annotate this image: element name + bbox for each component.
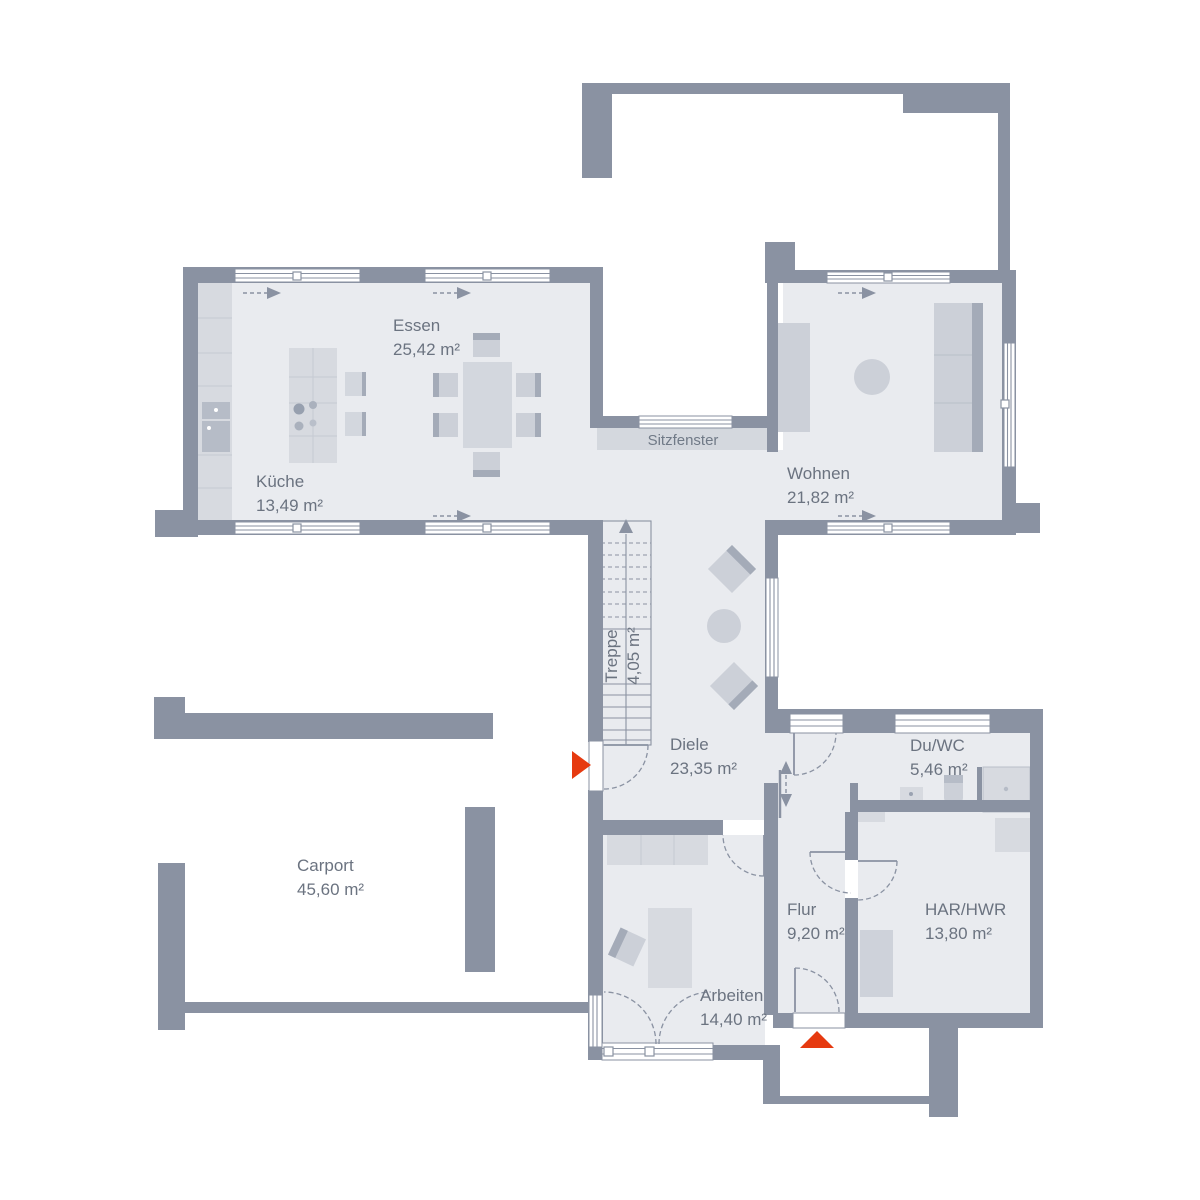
svg-text:13,49 m²: 13,49 m² <box>256 496 323 515</box>
svg-text:21,82 m²: 21,82 m² <box>787 488 854 507</box>
window <box>827 272 950 283</box>
toilet <box>944 775 963 803</box>
kitchen-counter <box>198 283 232 520</box>
office-desk <box>648 908 692 988</box>
office-shelf <box>607 835 708 865</box>
svg-text:Arbeiten: Arbeiten <box>700 986 763 1005</box>
washing-machine <box>995 818 1030 852</box>
utility-cabinet <box>860 930 893 997</box>
svg-text:Carport: Carport <box>297 856 354 875</box>
svg-text:4,05 m²: 4,05 m² <box>624 627 643 685</box>
sofa <box>934 303 972 452</box>
svg-text:25,42 m²: 25,42 m² <box>393 340 460 359</box>
svg-text:5,46 m²: 5,46 m² <box>910 760 968 779</box>
svg-text:Flur: Flur <box>787 900 817 919</box>
window <box>235 269 360 282</box>
window <box>425 269 550 282</box>
window <box>766 578 778 677</box>
floor-plan-svg: Essen 25,42 m² Küche 13,49 m² Wohnen 21,… <box>0 0 1200 1200</box>
dining-chair <box>516 413 541 437</box>
window <box>790 714 843 733</box>
room-label-carport: Carport 45,60 m² <box>297 856 364 899</box>
svg-text:Essen: Essen <box>393 316 440 335</box>
dining-chair <box>433 373 458 397</box>
hall-round-table <box>707 609 741 643</box>
sitzfenster-label: Sitzfenster <box>648 432 719 449</box>
carport-pillar <box>465 807 495 972</box>
dining-chair <box>473 452 500 477</box>
dining-chair <box>433 413 458 437</box>
svg-text:23,35 m²: 23,35 m² <box>670 759 737 778</box>
side-table <box>854 359 890 395</box>
svg-text:45,60 m²: 45,60 m² <box>297 880 364 899</box>
utility-shelf <box>858 812 885 822</box>
svg-text:Wohnen: Wohnen <box>787 464 850 483</box>
svg-text:Treppe: Treppe <box>602 629 621 682</box>
window <box>827 522 950 534</box>
svg-text:13,80 m²: 13,80 m² <box>925 924 992 943</box>
svg-text:14,40 m²: 14,40 m² <box>700 1010 767 1029</box>
svg-text:HAR/HWR: HAR/HWR <box>925 900 1006 919</box>
floor-plan-page: Essen 25,42 m² Küche 13,49 m² Wohnen 21,… <box>0 0 1200 1200</box>
french-door <box>602 1043 713 1060</box>
dining-chair <box>516 373 541 397</box>
svg-text:9,20 m²: 9,20 m² <box>787 924 845 943</box>
dining-table <box>463 362 512 448</box>
svg-text:Küche: Küche <box>256 472 304 491</box>
sideboard <box>778 323 810 432</box>
entrance-door <box>793 1013 845 1028</box>
entry-arrow-side-icon <box>572 751 591 779</box>
svg-text:Diele: Diele <box>670 735 709 754</box>
kitchen-oven <box>202 421 230 452</box>
window <box>589 995 602 1047</box>
dining-chair <box>473 333 500 357</box>
window <box>235 522 360 534</box>
bay-window <box>639 416 732 428</box>
svg-text:Du/WC: Du/WC <box>910 736 965 755</box>
entry-arrow-front-icon <box>800 1031 834 1048</box>
window <box>895 714 990 733</box>
front-door <box>589 741 603 791</box>
window <box>425 522 550 534</box>
